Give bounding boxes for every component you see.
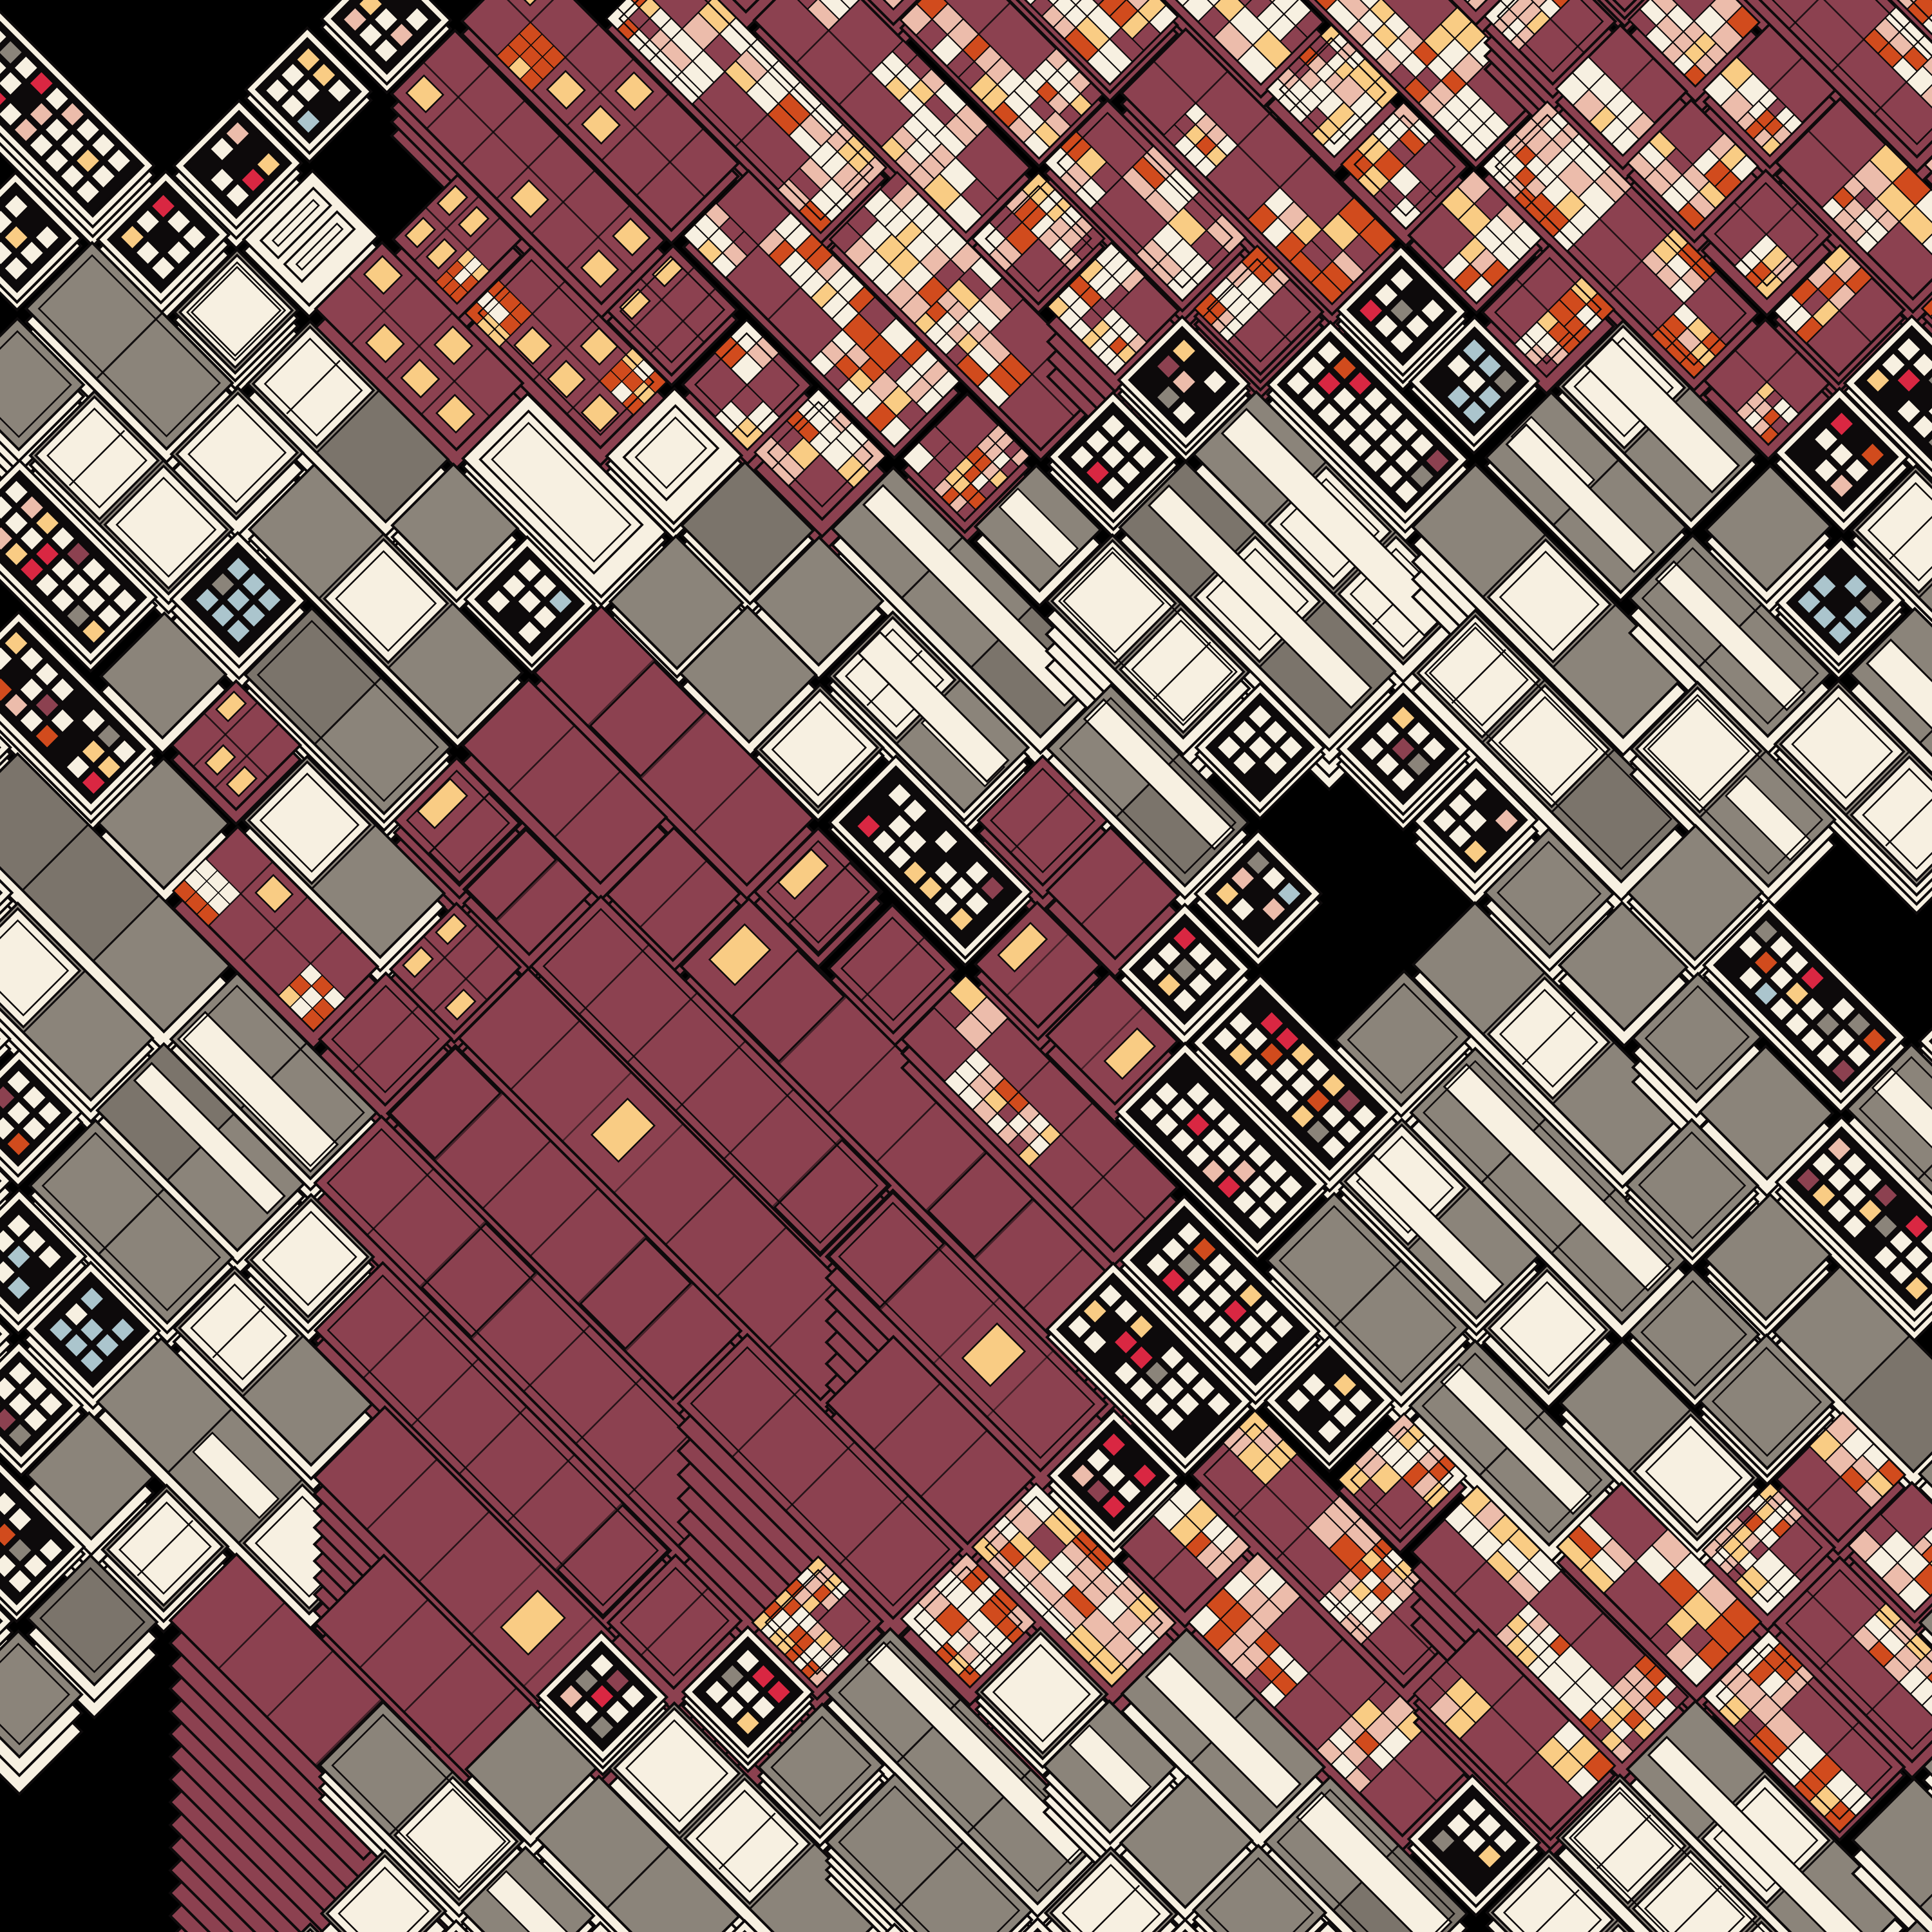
artwork-canvas: [0, 0, 1932, 1932]
generative-artwork: [0, 0, 1932, 1932]
